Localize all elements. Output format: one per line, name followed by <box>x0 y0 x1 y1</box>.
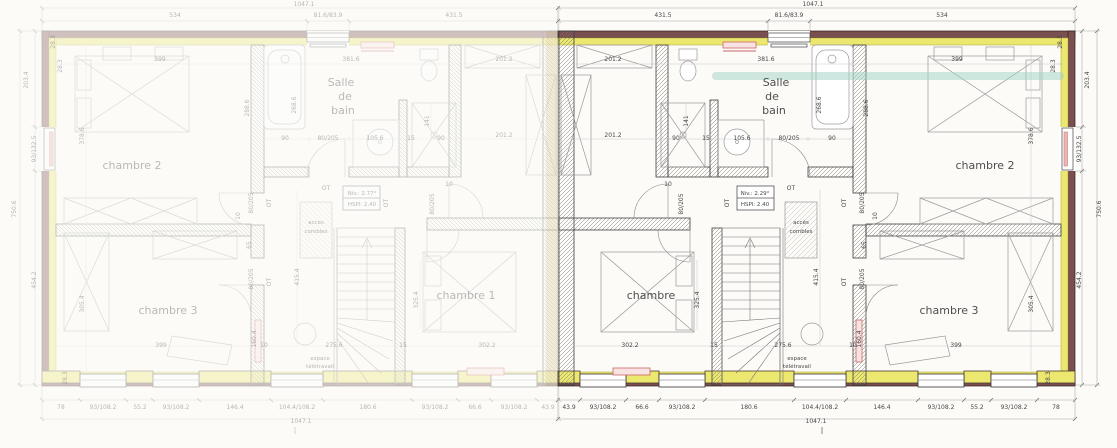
dimension-label: 28.3 <box>50 35 57 49</box>
dimension-label: 378.6 <box>1028 127 1035 144</box>
room-label: Salle <box>328 76 355 89</box>
dimension-label: 105.6 <box>733 135 750 142</box>
dimension-label: 78 <box>1052 404 1060 411</box>
dimension-label: 146.4 <box>226 404 243 411</box>
dimension-label: 43.9 <box>562 404 576 411</box>
dimension-label: 431.5 <box>445 12 462 19</box>
dimension-label: 93/108.2 <box>163 404 190 411</box>
dimension-label: 399 <box>950 342 962 349</box>
dimension-label: 268.6 <box>291 96 298 113</box>
annotation-label: Niv.: 2.29° <box>741 191 770 197</box>
dimension-label: 201.2 <box>495 56 512 63</box>
room-label: chambre 3 <box>919 304 978 317</box>
dimension-label: 10 <box>664 181 672 188</box>
room-label: chambre 2 <box>102 159 161 172</box>
dimension-label: 93/108.2 <box>1001 404 1028 411</box>
dimension-label: 399 <box>155 342 167 349</box>
dimension-label: 28.3 <box>62 371 69 385</box>
dimension-label: 399 <box>951 56 963 63</box>
dimension-label: 146.4 <box>873 404 890 411</box>
annotation-label: HSPl: 2.40 <box>741 202 770 208</box>
dimension-label: 399 <box>154 56 166 63</box>
dimension-label: 160.4 <box>251 330 258 347</box>
dimension-label: 80/205 <box>778 135 799 142</box>
annotation-label: espace <box>787 356 807 362</box>
room-label: de <box>765 90 779 103</box>
dimension-label: 203.4 <box>23 71 30 88</box>
annotation-label: HSPl: 2.40 <box>348 202 377 208</box>
dimension-label: 201.2 <box>604 132 621 139</box>
dimension-label: 275.6 <box>774 342 791 349</box>
dimension-label: 81.6/83.9 <box>314 12 343 19</box>
annotation-label: Niv.: 2.77° <box>348 191 377 197</box>
dimension-label: 10 <box>260 342 268 349</box>
room-label: chambre 1 <box>436 289 495 302</box>
dimension-label: 534 <box>169 12 181 19</box>
dimension-label: 78 <box>57 404 65 411</box>
dimension-label: 10 <box>849 342 857 349</box>
room-label: bain <box>331 104 355 117</box>
annotation-label: espace <box>310 356 330 362</box>
dimension-label: 55.2 <box>133 404 147 411</box>
dimension-label: 15 <box>710 342 718 349</box>
dimension-label: OT <box>841 277 848 286</box>
dimension-label: 65 <box>861 241 868 249</box>
dimension-label: OT <box>383 198 390 207</box>
dimension-label: 80/205 <box>429 193 436 214</box>
dimension-label: 90 <box>672 135 680 142</box>
dimension-label: 93/132.5 <box>31 135 38 162</box>
dimension-label: 275.6 <box>325 342 342 349</box>
dimension-label: 93/108.2 <box>422 404 449 411</box>
dimension-label: 378.6 <box>79 127 86 144</box>
dimension-label: 534 <box>936 12 948 19</box>
dimension-label: 381.6 <box>757 56 774 63</box>
dimension-label: 104.4/108.2 <box>802 404 839 411</box>
dimension-label: 28.3 <box>57 59 64 73</box>
dimension-label: 80/205 <box>678 193 685 214</box>
dimension-label: 10 <box>235 212 242 220</box>
dimension-label: 55.2 <box>970 404 984 411</box>
floor-plan-stage: 1047.11047.1431.5431.581.6/83.981.6/83.9… <box>0 0 1117 448</box>
dimension-label: 93/108.2 <box>590 404 617 411</box>
dimension-label: 80/205 <box>248 192 255 213</box>
left-plan-geometry <box>17 6 561 434</box>
dimension-label: OT <box>266 277 273 286</box>
dimension-label: 93/108.2 <box>90 404 117 411</box>
dimension-label: 10 <box>445 181 453 188</box>
dimension-label: OT <box>266 198 273 207</box>
dimension-label: 1047.1 <box>294 1 315 8</box>
dimension-label: OT <box>322 185 331 192</box>
dimension-label: 93/108.2 <box>501 404 528 411</box>
room-label: chambre 3 <box>138 304 197 317</box>
dimension-label: 381.6 <box>342 56 359 63</box>
dimension-label: 302.2 <box>621 342 638 349</box>
dimension-label: 104.4/108.2 <box>279 404 316 411</box>
dimension-label: 28.3 <box>1057 35 1064 49</box>
dimension-label: 415.4 <box>294 268 301 285</box>
room-label: Salle <box>763 76 790 89</box>
dimension-label: 93/132.5 <box>1076 135 1083 162</box>
room-label: chambre 2 <box>955 159 1014 172</box>
dimension-label: 288.6 <box>244 99 251 116</box>
dimension-label: 750.6 <box>1096 200 1103 217</box>
dimension-label: 415.4 <box>813 268 820 285</box>
dimension-label: 160.4 <box>856 330 863 347</box>
annotation-label: accès <box>308 219 324 226</box>
dimension-label: 305.4 <box>79 295 86 312</box>
dimension-label: 203.4 <box>1084 71 1091 88</box>
dimension-label: 431.5 <box>654 12 671 19</box>
room-label: chambre <box>627 289 676 302</box>
dimension-label: 302.2 <box>478 342 495 349</box>
dimension-label: 80/205 <box>317 135 338 142</box>
annotation-label: télétravail <box>783 363 811 370</box>
room-label: de <box>338 90 352 103</box>
dimension-label: 90 <box>281 135 289 142</box>
dimension-label: 1047.1 <box>806 418 827 425</box>
dimension-label: 750.6 <box>11 200 18 217</box>
right-plan-geometry <box>556 6 1100 434</box>
dimension-label: 201.2 <box>495 132 512 139</box>
dimension-label: 454.2 <box>31 271 38 288</box>
annotation-label: télétravail <box>306 363 334 370</box>
dimension-label: 43.9 <box>541 404 555 411</box>
dimension-label: 66.6 <box>635 404 649 411</box>
dimension-label: 105.6 <box>366 135 383 142</box>
dimension-label: 93/108.2 <box>928 404 955 411</box>
dimension-label: 81.6/83.9 <box>775 12 804 19</box>
annotation-label: combles <box>789 229 812 235</box>
dimension-label: 28.3 <box>1050 59 1057 73</box>
dimension-label: 28.3 <box>1045 371 1052 385</box>
dimension-label: 201.2 <box>604 56 621 63</box>
dimension-label: 90 <box>437 135 445 142</box>
dimension-label: 90 <box>828 135 836 142</box>
dimension-label: 1047.1 <box>291 418 312 425</box>
dimension-label: 180.6 <box>359 404 376 411</box>
dimension-label: 80/205 <box>859 268 866 289</box>
dimension-label: 1047.1 <box>803 1 824 8</box>
dimension-label: 325.4 <box>413 291 420 308</box>
dimension-label: OT <box>724 198 731 207</box>
annotation-label: accès <box>793 219 809 226</box>
dimension-label: 305.4 <box>1028 295 1035 312</box>
dimension-label: 15 <box>407 135 415 142</box>
annotation-label: combles <box>304 229 327 235</box>
dimension-label: 65 <box>246 241 253 249</box>
dimension-label: 325.4 <box>694 291 701 308</box>
dimension-label: 80/205 <box>859 192 866 213</box>
dimension-label: 268.6 <box>816 96 823 113</box>
dimension-label: 15 <box>399 342 407 349</box>
dimension-label: 141 <box>424 115 431 127</box>
dimension-label: 80/205 <box>248 268 255 289</box>
dimension-label: OT <box>787 185 796 192</box>
dimension-label: 10 <box>872 212 879 220</box>
dimension-label: OT <box>841 198 848 207</box>
room-label: bain <box>762 104 786 117</box>
dimension-label: 288.6 <box>863 99 870 116</box>
dimension-label: 141 <box>683 115 690 127</box>
dimension-label: 93/108.2 <box>669 404 696 411</box>
dimension-label: 15 <box>702 135 710 142</box>
floor-plan-drawing: 1047.11047.1431.5431.581.6/83.981.6/83.9… <box>0 0 1117 448</box>
dimension-label: 180.6 <box>740 404 757 411</box>
dimension-label: 454.2 <box>1076 271 1083 288</box>
dimension-label: 66.6 <box>468 404 482 411</box>
